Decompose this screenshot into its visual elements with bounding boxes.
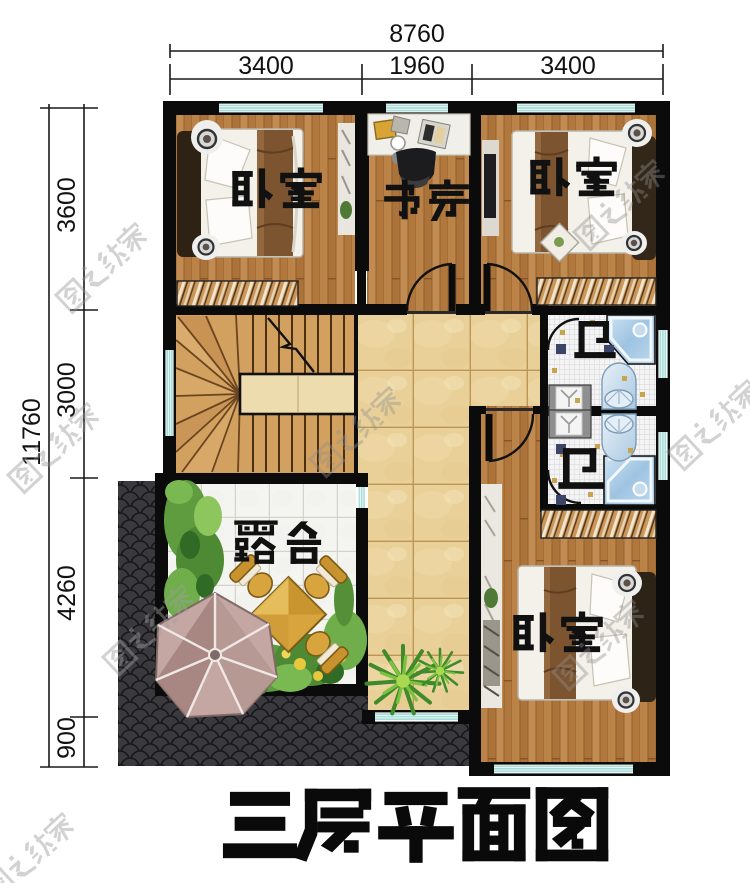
svg-text:8760: 8760 bbox=[389, 20, 445, 48]
svg-text:4260: 4260 bbox=[53, 565, 81, 621]
svg-text:3400: 3400 bbox=[238, 52, 294, 80]
svg-text:3400: 3400 bbox=[540, 52, 596, 80]
svg-text:900: 900 bbox=[53, 717, 81, 759]
svg-text:1960: 1960 bbox=[389, 52, 445, 80]
svg-text:3600: 3600 bbox=[53, 177, 81, 233]
svg-text:11760: 11760 bbox=[18, 398, 46, 466]
